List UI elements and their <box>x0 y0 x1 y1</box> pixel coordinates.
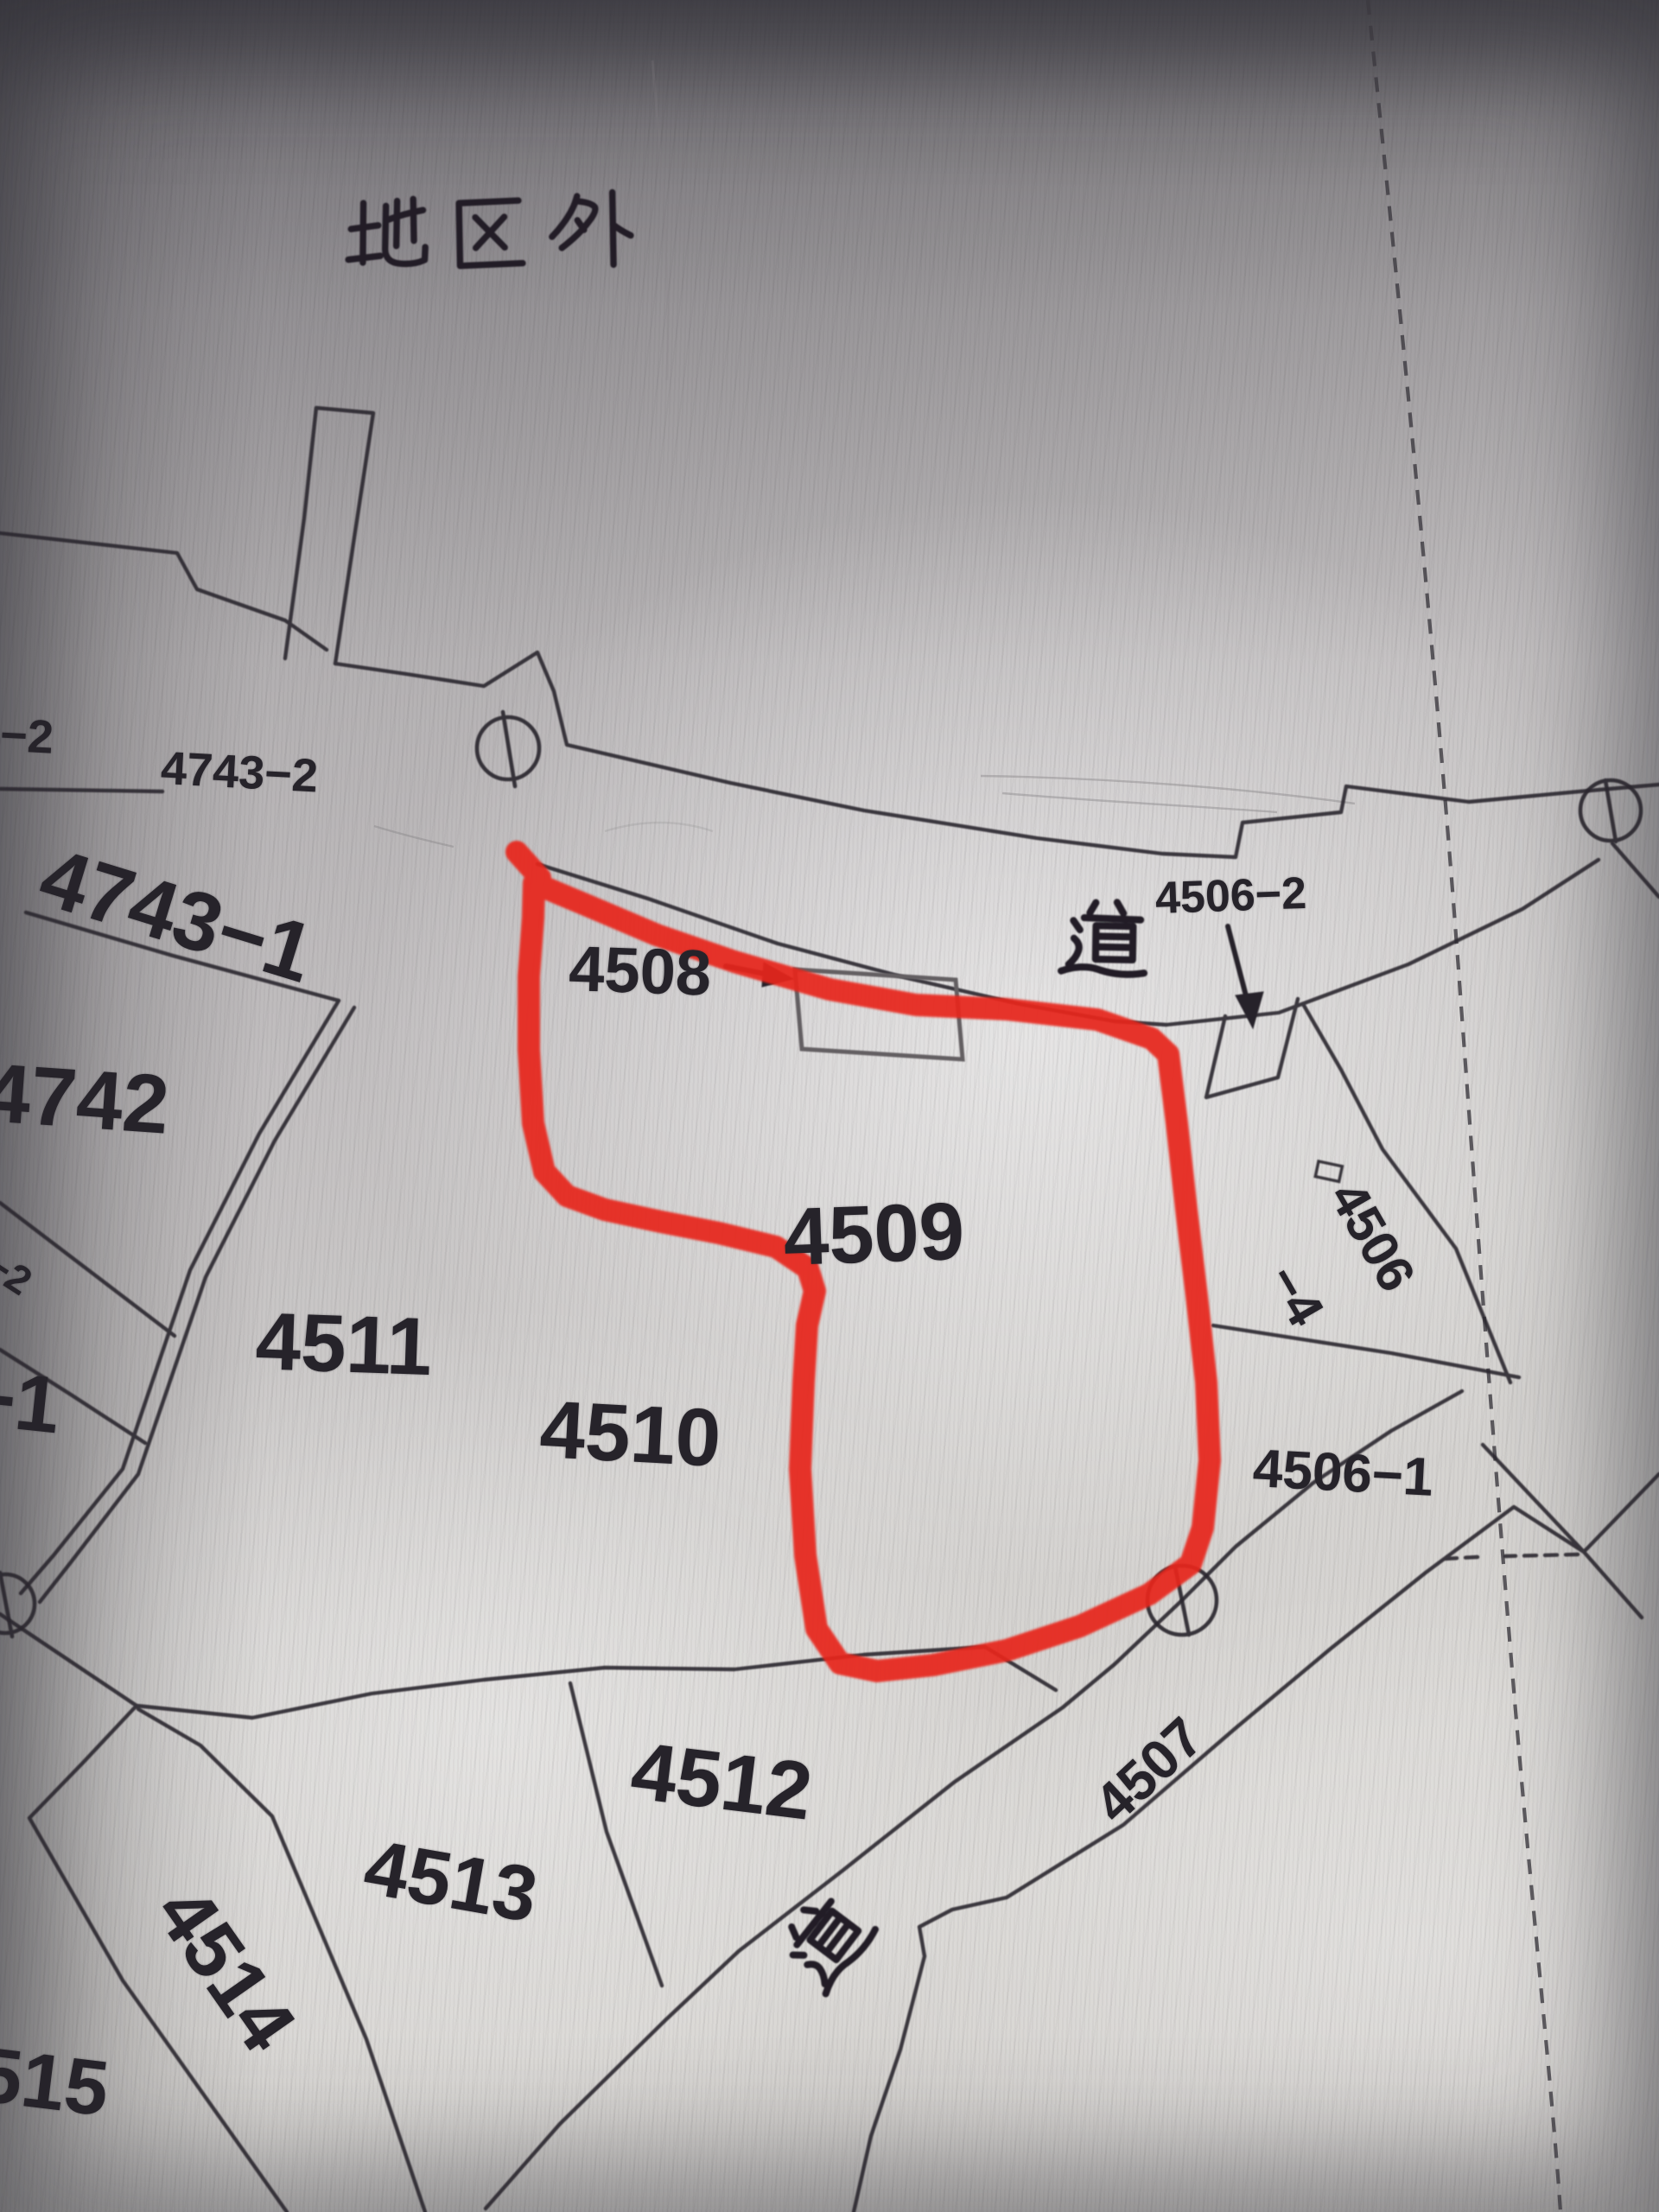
parcel-label--1: −1 <box>0 1352 64 1452</box>
parcel-label-4742: 4742 <box>0 1046 172 1154</box>
cadastral-map-photo: 4−2 4743−2 4743−1 4742 41−2 −1 4511 4508… <box>0 0 1659 2212</box>
parcel-label-4506-4a: 4506 <box>1318 1172 1427 1301</box>
parcel-label-4512: 4512 <box>626 1724 817 1839</box>
parcel-label-4743-2: 4743−2 <box>160 741 320 803</box>
parcel-label-41-2: 41−2 <box>0 1217 41 1305</box>
parcel-label-4507: 4507 <box>1082 1705 1216 1835</box>
parcel-label-4506-1: 4506−1 <box>1251 1438 1434 1509</box>
parcel-label-4509: 4509 <box>782 1185 966 1284</box>
parcel-label-4506-4b: −4 <box>1255 1255 1336 1336</box>
parcel-label-4743-1: 4743−1 <box>29 829 324 1002</box>
parcel-label-4514: 4514 <box>137 1871 313 2068</box>
parcel-label-4511: 4511 <box>254 1294 434 1394</box>
parcel-label-4-2: 4−2 <box>0 707 54 765</box>
parcel-label-4508: 4508 <box>568 931 712 1010</box>
parcel-label-4515: 515 <box>0 2031 113 2135</box>
parcel-labels: 4−2 4743−2 4743−1 4742 41−2 −1 4511 4508… <box>0 0 1659 2212</box>
parcel-label-4510: 4510 <box>537 1382 722 1485</box>
parcel-label-4506-2: 4506−2 <box>1154 868 1307 925</box>
parcel-label-4513: 4513 <box>358 1823 543 1941</box>
